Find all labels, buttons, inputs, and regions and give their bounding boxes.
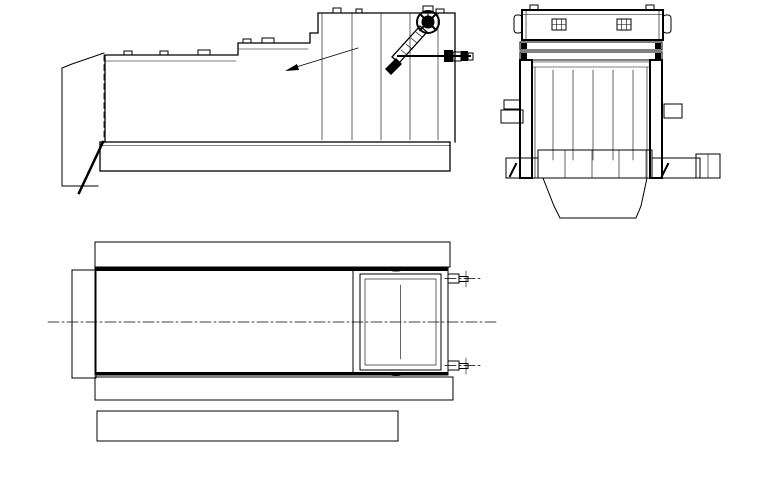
stub-shaft	[459, 277, 468, 282]
end-frame	[520, 60, 662, 178]
tall-frame-columns	[322, 13, 438, 140]
pit-outline	[543, 178, 647, 218]
leader-arrowhead	[285, 64, 299, 71]
drawing-canvas	[0, 0, 761, 492]
cover-plate	[617, 19, 631, 30]
screw-nut-1	[444, 50, 453, 62]
clamp-mark-top	[388, 268, 404, 272]
base-beam	[100, 142, 450, 171]
housing-top-tabs	[124, 8, 444, 55]
cover-side-knob-left	[514, 15, 522, 33]
leader-annotation	[285, 48, 358, 71]
frame-cross-lines	[532, 62, 650, 178]
frame-column-left	[520, 60, 532, 178]
entry-guide-outline	[62, 53, 104, 186]
bracket-block	[504, 100, 520, 109]
screw-adjuster	[385, 6, 473, 75]
cover-side-knob-right	[663, 15, 671, 33]
beam-end-blocks	[521, 43, 661, 59]
end-view	[501, 5, 720, 218]
entry-guide	[62, 53, 104, 193]
top-bearing-band	[95, 242, 450, 267]
frame-plates	[553, 70, 633, 160]
base-joints	[565, 150, 646, 178]
screw-jack-foot	[385, 58, 402, 75]
screw-nut-3	[461, 51, 468, 61]
top-beams	[520, 42, 662, 60]
stub-shaft	[459, 364, 468, 369]
drawing-sheet	[0, 0, 761, 492]
gear-band	[97, 411, 398, 441]
cover-plate	[552, 19, 566, 30]
base-pad-pins	[510, 164, 668, 176]
bottom-bearing-band	[95, 377, 453, 400]
shaft-stub-upper	[445, 271, 480, 287]
entry-table	[72, 270, 96, 378]
leader-line	[293, 48, 358, 68]
frame-outline	[95, 268, 448, 375]
cover-plate-grid	[552, 19, 566, 30]
top-cover	[514, 5, 671, 40]
housing	[105, 8, 455, 142]
beam-lower	[520, 52, 662, 60]
shaft-stub-lower	[445, 358, 480, 374]
housing-profile	[105, 13, 455, 142]
side-elevation-view	[62, 6, 473, 193]
base-pad-right	[652, 158, 700, 178]
drive-link-block	[664, 104, 682, 118]
base-outline	[100, 142, 450, 171]
beam-upper	[520, 42, 662, 50]
clamp-mark-bottom	[388, 372, 404, 376]
cover-inner-lines	[522, 10, 663, 40]
end-foundation	[543, 178, 647, 218]
base-block	[538, 150, 652, 178]
plan-view	[48, 242, 497, 441]
cover-plate-grid	[617, 19, 631, 30]
